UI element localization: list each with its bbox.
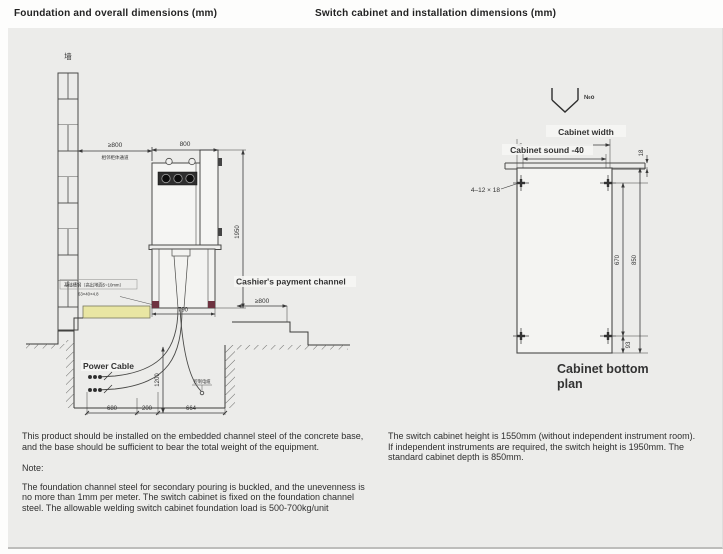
pit-dim-right-text: 664 bbox=[186, 406, 197, 412]
hoist-mark-label: №o bbox=[584, 94, 595, 101]
notes-left-paragraph2: The foundation channel steel for seconda… bbox=[22, 482, 366, 514]
rear-clearance-dim-text: ≥800 bbox=[108, 142, 123, 149]
cabinet-inner-dim-line bbox=[523, 154, 606, 168]
notes-right: The switch cabinet height is 1550mm (wit… bbox=[388, 431, 702, 463]
plan-outline bbox=[517, 168, 612, 353]
switch-cabinet bbox=[152, 150, 222, 247]
page-title-foundation: Foundation and overall dimensions (mm) bbox=[14, 8, 217, 19]
hole-offset-dim-text: 93 bbox=[626, 341, 632, 348]
channel-steel-size-text: 63×40×4.8 bbox=[78, 292, 99, 297]
power-cable-connectors bbox=[88, 372, 112, 393]
note-label: Note: bbox=[22, 463, 366, 474]
cabinet-depth-dim-text: 850 bbox=[632, 254, 638, 265]
channel-steel-note-text: 基础槽钢（高出地面5~10mm） bbox=[64, 282, 124, 289]
mounting-holes-label: 4–12 × 18 bbox=[471, 187, 500, 194]
cabinet-inner-label: Cabinet sound -40 bbox=[510, 145, 584, 155]
front-clearance-dim bbox=[237, 306, 287, 322]
rear-clearance-note: 相邻柜体通道 bbox=[102, 154, 129, 161]
rail-height-dim-text: 18 bbox=[639, 149, 645, 156]
foundation-drawing: 墙 ≥800 相邻柜体通道 800 bbox=[20, 40, 400, 435]
notes-left: This product should be installed on the … bbox=[22, 431, 366, 514]
ground-profile bbox=[26, 318, 350, 408]
notes-left-paragraph1: This product should be installed on the … bbox=[22, 431, 366, 452]
pit-depth-dim-text: 1200 bbox=[155, 373, 161, 387]
wall: 墙 bbox=[58, 51, 78, 330]
cables bbox=[98, 308, 201, 391]
installation-drawing: №o Cabinet width Cabinet sound -40 18 4–… bbox=[440, 55, 723, 405]
power-cable-label: Power Cable bbox=[83, 361, 134, 371]
cabinet-width-dim-text: 800 bbox=[180, 141, 191, 148]
plan-title-line2: plan bbox=[557, 377, 583, 391]
mounting-holes-leader bbox=[501, 183, 519, 189]
control-cable: 控制电缆 bbox=[192, 378, 212, 395]
cabinet-width-label: Cabinet width bbox=[558, 127, 614, 137]
hoist-mark bbox=[552, 88, 578, 112]
control-cable-label: 控制电缆 bbox=[193, 378, 211, 385]
pit-dim-mid-text: 200 bbox=[142, 406, 153, 412]
meter-panel bbox=[158, 172, 197, 185]
page-title-installation: Switch cabinet and installation dimensio… bbox=[315, 8, 556, 19]
cabinet-height-dim-text: 1950 bbox=[235, 225, 241, 239]
wall-label: 墙 bbox=[64, 51, 72, 61]
cashier-channel-label: Cashier's payment channel bbox=[236, 277, 346, 287]
plan-title-line1: Cabinet bottom bbox=[557, 362, 649, 376]
front-clearance-dim-text: ≥800 bbox=[255, 298, 270, 305]
foundation-channel-steel bbox=[83, 306, 150, 318]
cabinet-base bbox=[149, 245, 221, 308]
notes-right-paragraph1: The switch cabinet height is 1550mm (wit… bbox=[388, 431, 702, 463]
hole-span-dim-text: 670 bbox=[615, 254, 621, 265]
pit-dim-left-text: 680 bbox=[107, 406, 118, 412]
